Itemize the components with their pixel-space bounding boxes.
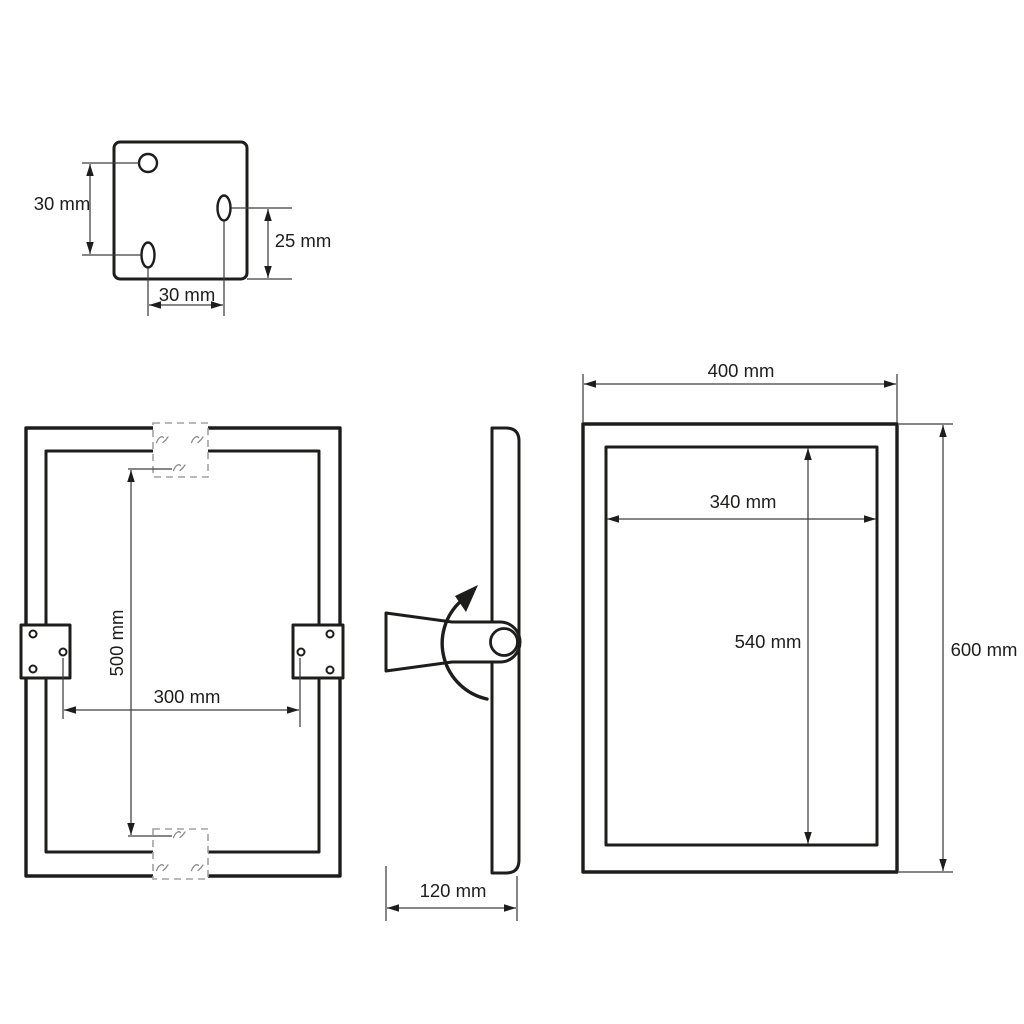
bracket-slot-hole-right (218, 196, 231, 221)
bracket-detail-view: 30 mm 25 mm 30 mm (34, 142, 332, 316)
screw-hole (298, 649, 305, 656)
front-view: 400 mm 600 mm 340 mm 540 mm (583, 360, 1017, 872)
dimension-label-120mm: 120 mm (420, 880, 487, 901)
bracket-round-hole (139, 154, 157, 172)
dimension-label-400mm: 400 mm (708, 360, 775, 381)
rear-view: 500 mm 300 mm (21, 423, 343, 879)
screw-hole (327, 631, 334, 638)
dimension-label-300mm: 300 mm (154, 686, 221, 707)
dimension-label-25mm: 25 mm (275, 230, 332, 251)
pivot-pin (491, 629, 518, 656)
rear-inner-frame (46, 451, 319, 852)
screw-hole (327, 667, 334, 674)
dimension-label-30mm-vertical: 30 mm (34, 193, 91, 214)
side-view: 120 mm (386, 428, 520, 921)
rotation-arrow-head (455, 585, 478, 612)
screw-hole (60, 649, 67, 656)
dimension-label-340mm: 340 mm (710, 491, 777, 512)
technical-drawing-canvas: 30 mm 25 mm 30 mm 500 mm 300 mm (0, 0, 1024, 1024)
dimension-label-600mm: 600 mm (951, 639, 1018, 660)
bracket-slot-hole-bottom-left (142, 243, 155, 268)
dimension-label-540mm: 540 mm (735, 631, 802, 652)
screw-hole (30, 631, 37, 638)
screw-hole (30, 666, 37, 673)
technical-drawing-page: 30 mm 25 mm 30 mm 500 mm 300 mm (0, 0, 1024, 1024)
dimension-label-30mm-horizontal: 30 mm (159, 284, 216, 305)
dimension-label-500mm: 500 mm (106, 610, 127, 677)
